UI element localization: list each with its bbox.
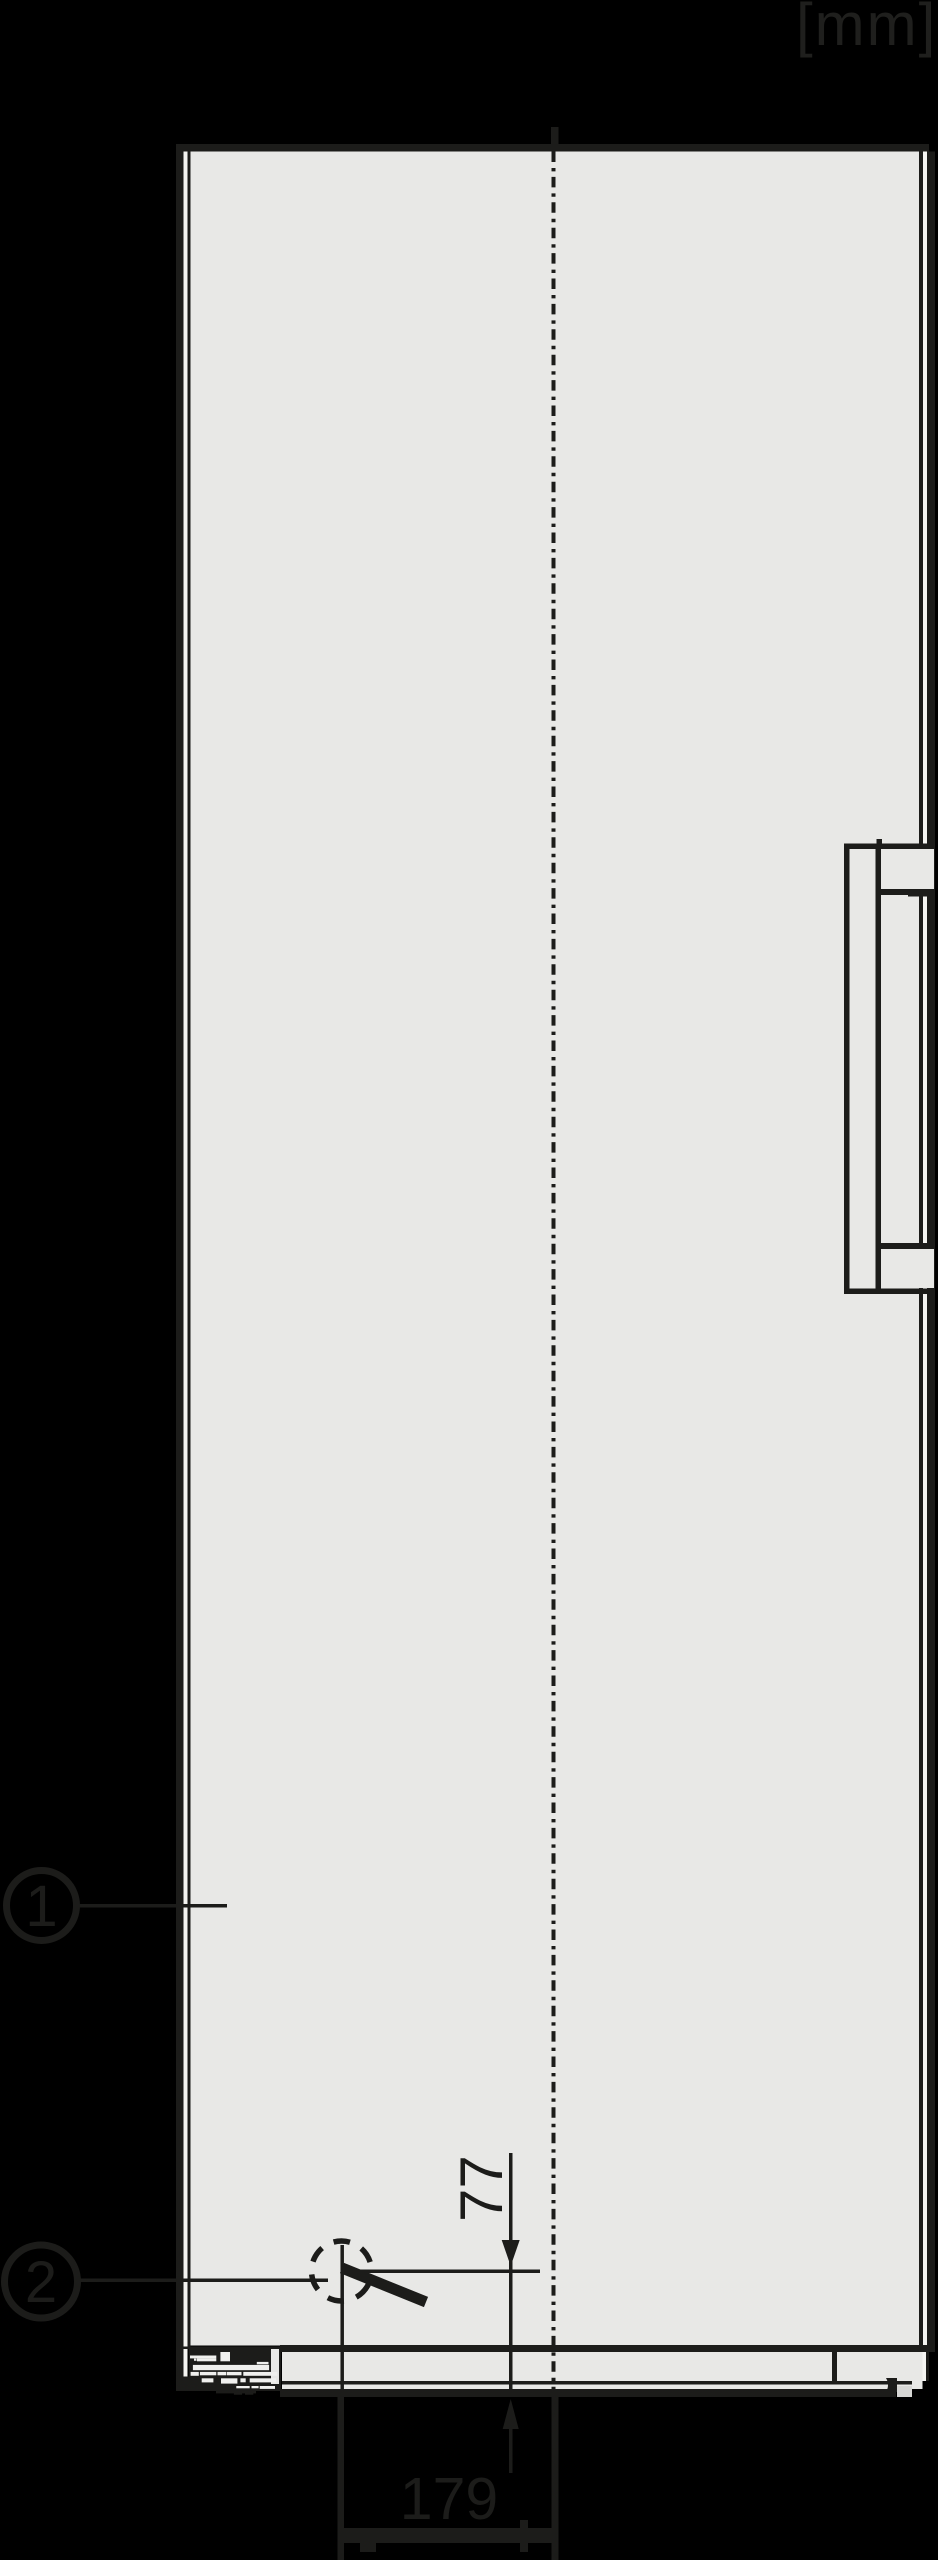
svg-text:179: 179	[400, 2466, 498, 2532]
svg-text:2: 2	[25, 2250, 57, 2315]
svg-text:1: 1	[25, 1874, 57, 1939]
svg-text:77: 77	[448, 2155, 515, 2222]
svg-text:[mm]: [mm]	[796, 0, 937, 58]
